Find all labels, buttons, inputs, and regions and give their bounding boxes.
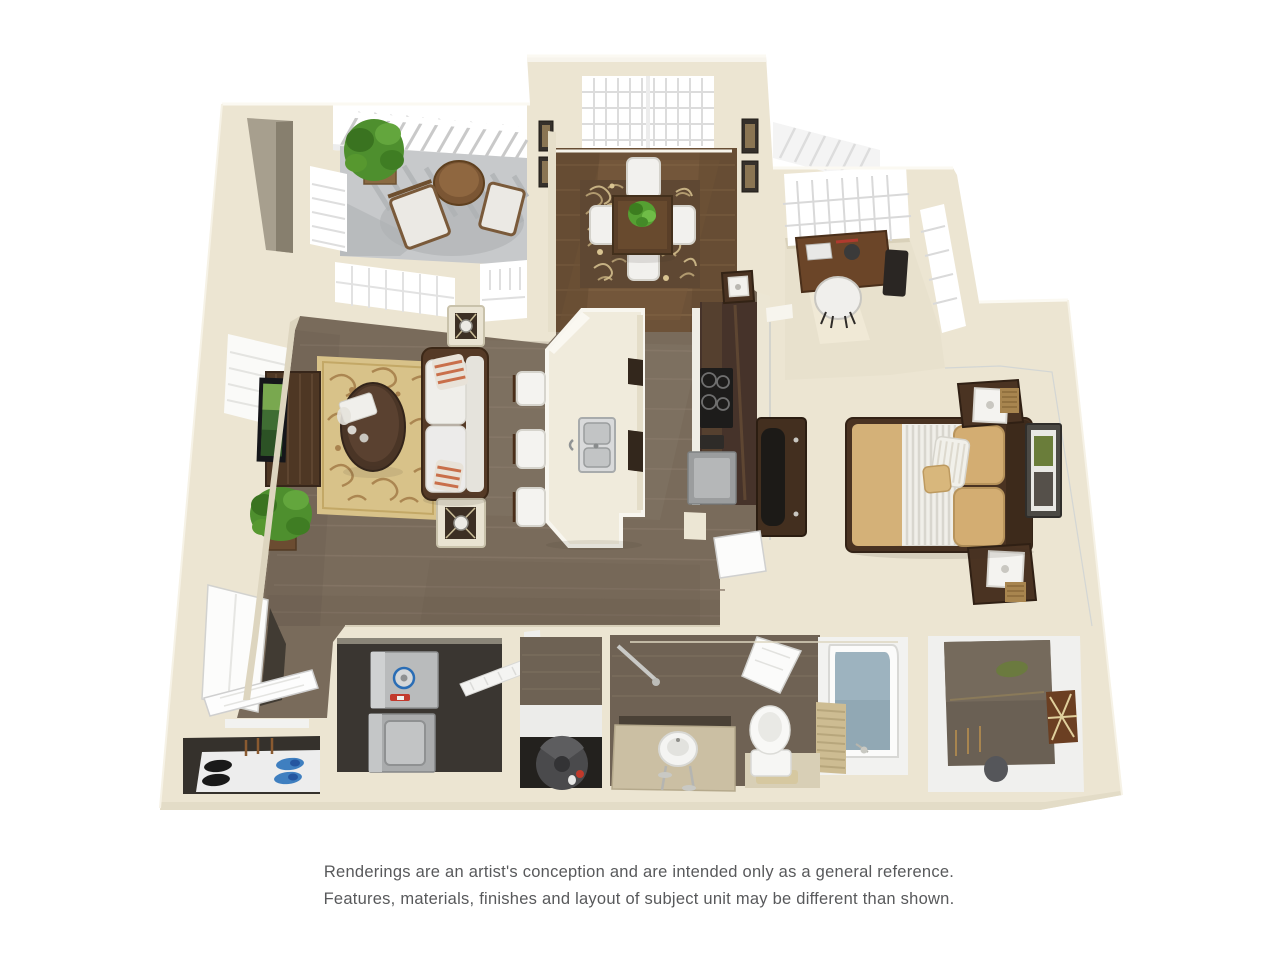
svg-text:Renderings are an artist's con: Renderings are an artist's conception an… bbox=[324, 863, 954, 881]
svg-text:Features, materials, finishes: Features, materials, finishes and layout… bbox=[324, 890, 955, 908]
